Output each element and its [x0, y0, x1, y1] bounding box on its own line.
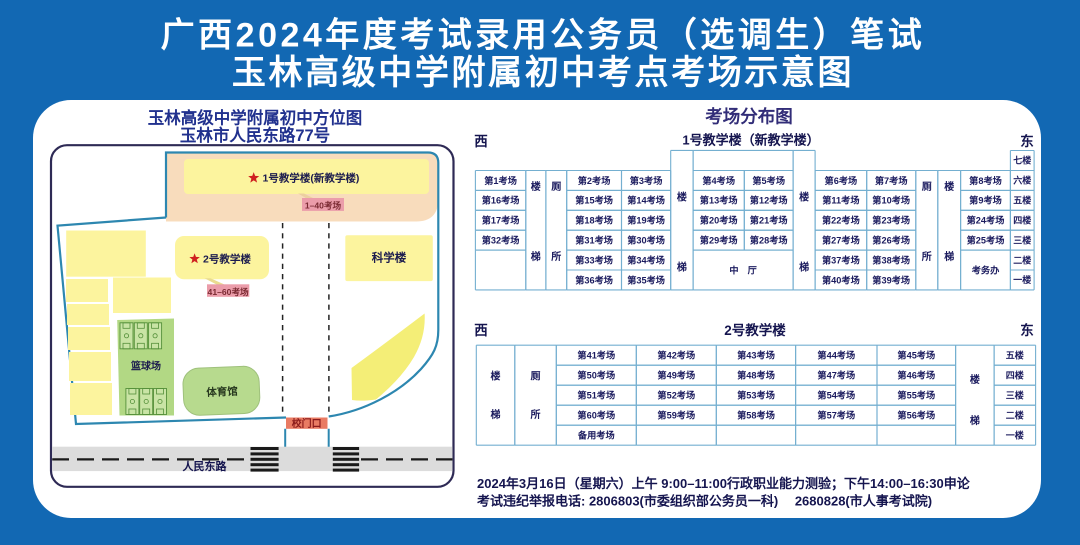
svg-text:第40考场: 第40考场: [822, 274, 860, 285]
svg-text:梯: 梯: [799, 261, 809, 274]
svg-text:第48考场: 第48考场: [737, 370, 775, 381]
svg-text:体育馆: 体育馆: [206, 385, 238, 399]
svg-text:六楼: 六楼: [1013, 175, 1031, 186]
svg-text:第18考场: 第18考场: [575, 215, 613, 226]
svg-text:1号教学楼(新教学楼): 1号教学楼(新教学楼): [263, 172, 360, 185]
svg-text:第19考场: 第19考场: [627, 215, 665, 226]
svg-text:第22考场: 第22考场: [822, 215, 860, 226]
svg-text:三楼: 三楼: [1006, 389, 1024, 400]
svg-text:第55考场: 第55考场: [897, 390, 935, 401]
svg-text:第50考场: 第50考场: [577, 370, 615, 381]
svg-text:一楼: 一楼: [1013, 274, 1031, 285]
svg-text:二楼: 二楼: [1013, 254, 1031, 265]
svg-text:考试违纪举报电话: 2806803(市委组织部公务员一科): 考试违纪举报电话: 2806803(市委组织部公务员一科) 2680828(市人…: [477, 494, 932, 509]
svg-text:第8考场: 第8考场: [969, 175, 1002, 186]
svg-text:第5考场: 第5考场: [752, 175, 785, 186]
svg-text:第37考场: 第37考场: [822, 254, 860, 265]
svg-text:一楼: 一楼: [1006, 429, 1024, 440]
svg-text:东: 东: [1020, 133, 1034, 149]
svg-text:第38考场: 第38考场: [872, 254, 910, 265]
svg-text:厕: 厕: [531, 371, 541, 383]
svg-text:第21考场: 第21考场: [750, 215, 788, 226]
svg-text:第14考场: 第14考场: [627, 195, 665, 206]
svg-text:2024年3月16日（星期六）上午 9:00–11:00行政: 2024年3月16日（星期六）上午 9:00–11:00行政职业能力测验；下午1…: [477, 476, 971, 492]
svg-text:梯: 梯: [944, 250, 954, 263]
svg-text:所: 所: [551, 250, 561, 263]
svg-text:楼: 楼: [531, 180, 541, 193]
svg-text:第51考场: 第51考场: [577, 390, 615, 401]
svg-text:梯: 梯: [491, 408, 501, 421]
svg-text:第4考场: 第4考场: [702, 175, 735, 186]
svg-text:第23考场: 第23考场: [872, 215, 910, 226]
svg-text:第36考场: 第36考场: [575, 274, 613, 285]
svg-text:科学楼: 科学楼: [372, 251, 407, 265]
svg-text:三楼: 三楼: [1013, 234, 1031, 245]
svg-text:第43考场: 第43考场: [737, 350, 775, 361]
svg-text:第44考场: 第44考场: [817, 350, 855, 361]
svg-text:第10考场: 第10考场: [872, 195, 910, 206]
svg-text:厕: 厕: [551, 181, 561, 193]
svg-text:第42考场: 第42考场: [657, 350, 695, 361]
svg-text:四楼: 四楼: [1006, 369, 1024, 380]
svg-text:玉林市人民东路77号: 玉林市人民东路77号: [180, 125, 330, 145]
svg-text:人民东路: 人民东路: [183, 459, 228, 473]
svg-text:第57考场: 第57考场: [817, 410, 855, 421]
svg-text:楼: 楼: [677, 191, 687, 204]
svg-text:1号教学楼（新教学楼）: 1号教学楼（新教学楼）: [682, 133, 819, 148]
svg-text:第56考场: 第56考场: [897, 410, 935, 421]
svg-text:第24考场: 第24考场: [967, 215, 1005, 226]
svg-text:第20考场: 第20考场: [700, 215, 738, 226]
svg-text:第31考场: 第31考场: [575, 235, 613, 246]
svg-text:考场分布图: 考场分布图: [704, 106, 793, 126]
svg-text:第6考场: 第6考场: [825, 175, 858, 186]
svg-text:第41考场: 第41考场: [577, 350, 615, 361]
svg-text:楼: 楼: [970, 373, 980, 386]
svg-text:第15考场: 第15考场: [575, 195, 613, 206]
svg-text:第34考场: 第34考场: [627, 254, 665, 265]
svg-text:第27考场: 第27考场: [822, 235, 860, 246]
svg-text:第35考场: 第35考场: [627, 274, 665, 285]
svg-text:第2考场: 第2考场: [578, 175, 611, 186]
svg-text:第52考场: 第52考场: [657, 390, 695, 401]
svg-text:梯: 梯: [970, 414, 980, 427]
svg-text:西: 西: [474, 134, 488, 149]
svg-text:楼: 楼: [944, 180, 954, 193]
svg-text:所: 所: [531, 408, 541, 421]
svg-text:第11考场: 第11考场: [822, 195, 859, 206]
svg-text:二楼: 二楼: [1006, 409, 1024, 420]
svg-text:第59考场: 第59考场: [657, 410, 695, 421]
svg-text:2号教学楼: 2号教学楼: [203, 252, 251, 265]
svg-text:第32考场: 第32考场: [482, 235, 520, 246]
svg-text:第45考场: 第45考场: [897, 350, 935, 361]
svg-text:第28考场: 第28考场: [750, 235, 788, 246]
svg-text:第1考场: 第1考场: [484, 175, 517, 186]
svg-text:备用考场: 备用考场: [577, 430, 615, 441]
svg-text:梯: 梯: [677, 261, 687, 274]
svg-text:第29考场: 第29考场: [700, 235, 738, 246]
svg-text:第9考场: 第9考场: [969, 195, 1002, 206]
svg-text:校门口: 校门口: [292, 417, 322, 430]
svg-text:第30考场: 第30考场: [627, 235, 665, 246]
svg-text:第26考场: 第26考场: [872, 235, 910, 246]
svg-text:2号教学楼: 2号教学楼: [724, 322, 786, 338]
svg-text:西: 西: [474, 323, 488, 338]
svg-text:第16考场: 第16考场: [482, 195, 520, 206]
svg-text:厕: 厕: [922, 181, 932, 193]
svg-text:第54考场: 第54考场: [817, 390, 855, 401]
svg-text:篮球场: 篮球场: [130, 360, 161, 373]
svg-text:第12考场: 第12考场: [750, 195, 788, 206]
svg-text:玉林高级中学附属初中考点考场示意图: 玉林高级中学附属初中考点考场示意图: [232, 53, 854, 92]
svg-text:41–60考场: 41–60考场: [208, 286, 249, 297]
svg-text:东: 东: [1020, 322, 1034, 338]
svg-text:考务办: 考务办: [972, 264, 1000, 275]
svg-text:七楼: 七楼: [1013, 155, 1031, 166]
svg-text:第13考场: 第13考场: [700, 195, 738, 206]
svg-text:玉林高级中学附属初中方位图: 玉林高级中学附属初中方位图: [148, 108, 363, 128]
svg-text:第33考场: 第33考场: [575, 254, 613, 265]
svg-text:中 厅: 中 厅: [729, 264, 757, 275]
svg-text:所: 所: [922, 250, 932, 263]
svg-text:五楼: 五楼: [1013, 195, 1031, 206]
svg-text:1–40考场: 1–40考场: [305, 200, 342, 211]
svg-text:第7考场: 第7考场: [875, 175, 908, 186]
svg-text:广西2024年度考试录用公务员（选调生）笔试: 广西2024年度考试录用公务员（选调生）笔试: [161, 16, 926, 55]
svg-text:楼: 楼: [799, 191, 809, 204]
svg-text:四楼: 四楼: [1013, 215, 1031, 226]
svg-text:梯: 梯: [531, 250, 541, 263]
svg-text:第58考场: 第58考场: [737, 410, 775, 421]
svg-text:第47考场: 第47考场: [817, 370, 855, 381]
svg-text:第25考场: 第25考场: [967, 235, 1005, 246]
svg-text:第17考场: 第17考场: [482, 215, 520, 226]
svg-text:楼: 楼: [491, 370, 501, 383]
svg-text:五楼: 五楼: [1006, 349, 1024, 360]
svg-text:第46考场: 第46考场: [897, 370, 935, 381]
svg-text:第49考场: 第49考场: [657, 370, 695, 381]
svg-text:第60考场: 第60考场: [577, 410, 615, 421]
svg-text:第3考场: 第3考场: [630, 175, 663, 186]
svg-text:第39考场: 第39考场: [872, 274, 910, 285]
svg-text:第53考场: 第53考场: [737, 390, 775, 401]
